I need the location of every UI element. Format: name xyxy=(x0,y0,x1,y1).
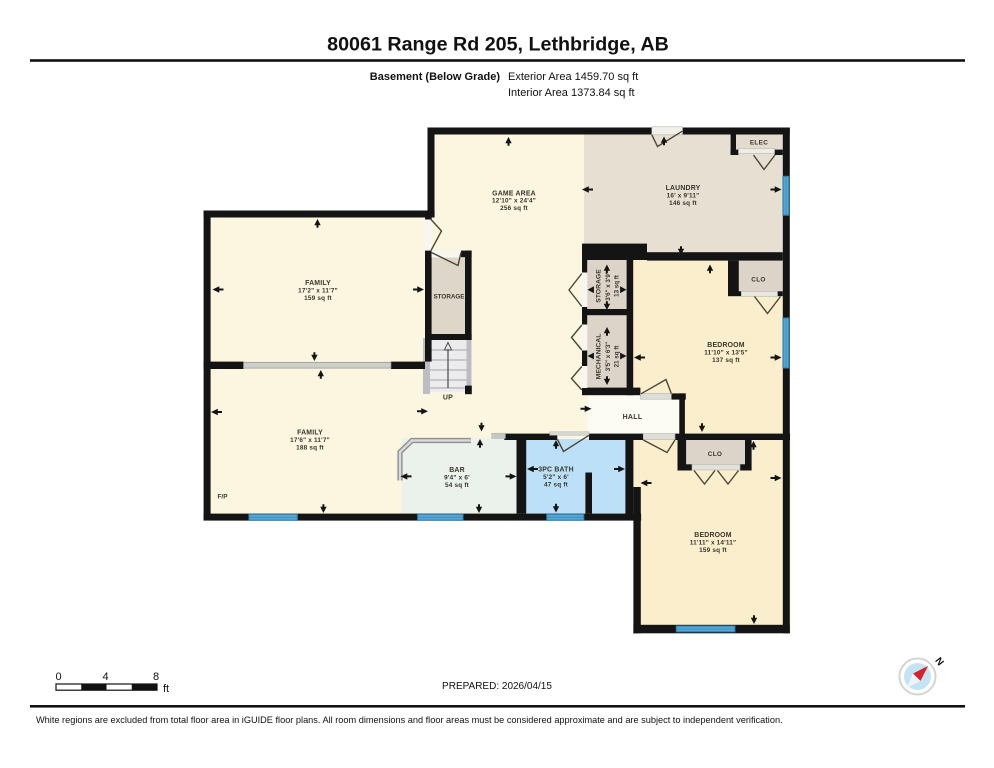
svg-text:9'4" x 6': 9'4" x 6' xyxy=(444,474,470,481)
svg-text:54 sq ft: 54 sq ft xyxy=(445,482,470,489)
svg-text:STORAGE: STORAGE xyxy=(595,269,602,303)
svg-text:188 sq ft: 188 sq ft xyxy=(296,444,324,451)
svg-text:HALL: HALL xyxy=(623,414,643,421)
svg-text:FAMILY: FAMILY xyxy=(305,280,331,287)
svg-text:13 sq ft: 13 sq ft xyxy=(613,275,620,297)
svg-text:159 sq ft: 159 sq ft xyxy=(699,547,727,554)
svg-text:4: 4 xyxy=(102,671,108,683)
svg-text:GAME AREA: GAME AREA xyxy=(492,190,536,197)
svg-text:12'10" x 24'4": 12'10" x 24'4" xyxy=(492,198,536,205)
svg-text:STORAGE: STORAGE xyxy=(433,294,464,301)
svg-text:47 sq ft: 47 sq ft xyxy=(544,481,569,488)
svg-text:Exterior Area 1459.70 sq ft: Exterior Area 1459.70 sq ft xyxy=(508,71,638,83)
svg-text:CLO: CLO xyxy=(751,277,765,284)
svg-text:0: 0 xyxy=(55,671,61,683)
svg-text:UP: UP xyxy=(443,395,453,402)
svg-text:BEDROOM: BEDROOM xyxy=(694,532,731,539)
svg-text:BAR: BAR xyxy=(449,467,465,474)
svg-text:11'11" x 14'11": 11'11" x 14'11" xyxy=(690,539,737,546)
svg-text:80061 Range Rd 205, Lethbridge: 80061 Range Rd 205, Lethbridge, AB xyxy=(327,34,669,56)
svg-text:16' x 9'11": 16' x 9'11" xyxy=(667,192,700,199)
svg-text:17'6" x 11'7": 17'6" x 11'7" xyxy=(290,437,330,444)
svg-text:ELEC: ELEC xyxy=(750,140,768,147)
svg-text:3'6" x 3'9": 3'6" x 3'9" xyxy=(605,271,612,301)
svg-text:8: 8 xyxy=(153,671,159,683)
svg-text:3'5" x 6'3": 3'5" x 6'3" xyxy=(605,342,612,372)
svg-text:11'10" x 13'5": 11'10" x 13'5" xyxy=(704,349,748,356)
svg-text:21 sq ft: 21 sq ft xyxy=(613,346,620,368)
svg-text:FAMILY: FAMILY xyxy=(297,430,323,437)
svg-text:159 sq ft: 159 sq ft xyxy=(304,295,332,302)
svg-text:5'2" x 6': 5'2" x 6' xyxy=(543,474,569,481)
svg-text:CLO: CLO xyxy=(708,451,722,458)
svg-text:Basement (Below Grade): Basement (Below Grade) xyxy=(370,71,501,83)
svg-text:ft: ft xyxy=(163,683,169,695)
svg-text:137 sq ft: 137 sq ft xyxy=(712,357,740,364)
svg-text:256 sq ft: 256 sq ft xyxy=(500,205,528,212)
svg-text:BEDROOM: BEDROOM xyxy=(707,342,744,349)
svg-text:17'2" x 11'7": 17'2" x 11'7" xyxy=(298,287,338,294)
svg-text:PREPARED: 2026/04/15: PREPARED: 2026/04/15 xyxy=(442,681,552,692)
svg-text:MECHANICAL: MECHANICAL xyxy=(595,334,602,380)
svg-text:Interior Area 1373.84 sq ft: Interior Area 1373.84 sq ft xyxy=(508,87,635,99)
svg-text:146 sq ft: 146 sq ft xyxy=(669,200,697,207)
svg-text:LAUNDRY: LAUNDRY xyxy=(666,185,701,192)
svg-text:F/P: F/P xyxy=(218,494,229,501)
svg-text:White regions are excluded fro: White regions are excluded from total fl… xyxy=(36,715,783,725)
svg-text:3PC BATH: 3PC BATH xyxy=(538,467,574,474)
